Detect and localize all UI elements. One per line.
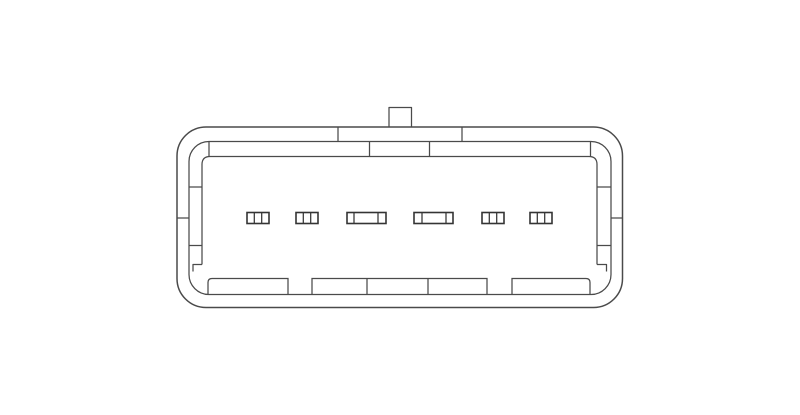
bottom-notch-block (208, 279, 288, 295)
inner-shell-outline (189, 142, 611, 295)
cavity-outline (202, 157, 597, 265)
bottom-left-step (193, 265, 202, 272)
bottom-notch-block (312, 279, 487, 295)
pin-slot-6 (530, 213, 552, 224)
pin-slot-2 (296, 213, 318, 224)
pin-slot-5 (482, 213, 504, 224)
key-tab (389, 108, 412, 128)
pin-slot-1 (247, 213, 269, 224)
drawing-page (0, 0, 800, 415)
outer-shell-outline (177, 127, 623, 308)
connector-face-diagram (0, 0, 800, 415)
bottom-notch-block (512, 279, 590, 295)
pin-slot-3 (347, 213, 386, 224)
pin-slot-4 (414, 213, 453, 224)
bottom-right-step (597, 265, 607, 272)
